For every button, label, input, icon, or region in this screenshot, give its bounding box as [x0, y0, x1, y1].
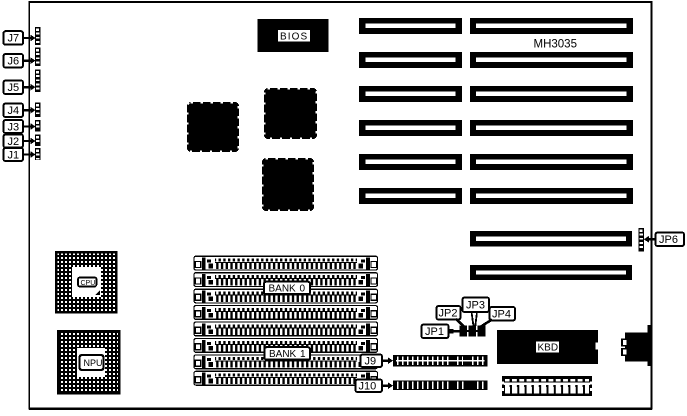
svg-text:J9: J9: [365, 356, 377, 368]
svg-text:0: 0: [300, 283, 306, 294]
svg-text:J3: J3: [8, 121, 20, 133]
svg-text:J10: J10: [359, 381, 377, 393]
svg-text:NPU: NPU: [84, 358, 103, 368]
svg-text:JP1: JP1: [425, 326, 444, 338]
svg-text:JP6: JP6: [659, 234, 678, 246]
svg-text:J6: J6: [8, 56, 20, 68]
svg-text:J4: J4: [8, 105, 20, 117]
svg-text:J7: J7: [8, 33, 20, 45]
svg-text:JP4: JP4: [492, 309, 511, 321]
svg-text:J5: J5: [8, 82, 20, 94]
svg-text:J1: J1: [8, 149, 20, 161]
svg-text:JP2: JP2: [439, 308, 458, 320]
svg-text:KBD: KBD: [538, 343, 559, 354]
svg-text:BANK: BANK: [269, 349, 297, 360]
svg-text:J2: J2: [8, 136, 20, 148]
svg-text:CPU: CPU: [81, 280, 96, 287]
svg-text:MH3035: MH3035: [534, 39, 577, 51]
svg-text:BIOS: BIOS: [280, 32, 308, 43]
svg-text:JP3: JP3: [466, 300, 485, 312]
svg-text:1: 1: [300, 349, 306, 360]
svg-text:BANK: BANK: [269, 283, 297, 294]
